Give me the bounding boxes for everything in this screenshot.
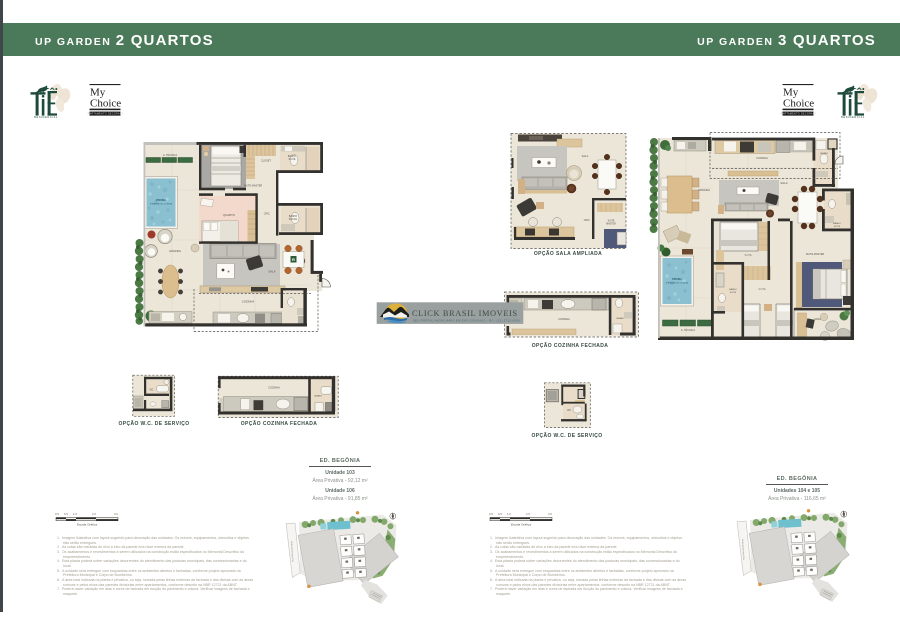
svg-text:MASTER: MASTER (606, 223, 616, 226)
svg-text:LAVABO: LAVABO (820, 152, 828, 155)
svg-text:SUITE MASTER: SUITE MASTER (244, 185, 263, 188)
svg-text:COZINHA: COZINHA (242, 300, 255, 304)
svg-text:BANHO: BANHO (288, 155, 296, 158)
svg-text:CIRC.: CIRC. (584, 219, 591, 222)
svg-text:SALA: SALA (780, 181, 787, 185)
svg-text:SUITE: SUITE (289, 159, 296, 161)
svg-text:BANHO: BANHO (729, 288, 737, 291)
svg-text:3.0: 3.0 (114, 512, 118, 516)
svg-text:PISCINA: PISCINA (672, 278, 682, 281)
svg-text:APARTAMENTO DECORADO: APARTAMENTO DECORADO (780, 113, 816, 116)
svg-text:SUITE: SUITE (608, 221, 615, 223)
svg-text:WC: WC (150, 389, 154, 391)
svg-text:CLICK BRASIL IMOVEIS: CLICK BRASIL IMOVEIS (412, 309, 518, 318)
svg-text:1.0: 1.0 (73, 512, 77, 516)
svg-text:0.5: 0.5 (64, 512, 68, 516)
svg-text:Escala Gráfica: Escala Gráfica (77, 523, 97, 527)
svg-text:RESIDENCIAL: RESIDENCIAL (841, 115, 865, 118)
svg-text:0.5: 0.5 (55, 512, 59, 516)
svg-text:2.0: 2.0 (526, 512, 530, 516)
svg-text:CIRC.: CIRC. (264, 213, 271, 216)
svg-text:COZINHA: COZINHA (756, 156, 768, 160)
svg-text:3.0: 3.0 (548, 512, 552, 516)
svg-text:R: R (292, 257, 295, 262)
svg-text:SUITE MASTER: SUITE MASTER (806, 253, 825, 256)
svg-text:QUARTO: QUARTO (223, 213, 236, 217)
svg-text:APARTAMENTO DECORADO: APARTAMENTO DECORADO (87, 113, 123, 116)
svg-text:2.0: 2.0 (92, 512, 96, 516)
svg-text:SEU PORTAL IMOBILIARIO EM SAO: SEU PORTAL IMOBILIARIO EM SAO GONCALO - … (413, 318, 520, 322)
svg-text:(PRAINHA USO COMUM): (PRAINHA USO COMUM) (150, 203, 172, 206)
svg-text:LAVABO: LAVABO (616, 317, 624, 320)
svg-text:SUITE: SUITE (758, 288, 766, 291)
svg-text:SALA: SALA (582, 154, 589, 158)
svg-text:BANHO: BANHO (289, 215, 297, 218)
svg-text:COZINHA: COZINHA (268, 386, 280, 390)
svg-text:(PRAINHA USO COMUM): (PRAINHA USO COMUM) (666, 282, 688, 285)
svg-text:COZINHA: COZINHA (558, 317, 570, 321)
svg-text:VARANDA: VARANDA (698, 189, 710, 192)
svg-text:RESIDENCIAL: RESIDENCIAL (34, 115, 58, 118)
svg-text:SALA: SALA (268, 270, 275, 274)
svg-text:SUITE: SUITE (744, 254, 752, 257)
svg-text:A. TÉCNICA: A. TÉCNICA (163, 154, 177, 157)
svg-text:Escala Gráfica: Escala Gráfica (511, 523, 531, 527)
svg-text:BANHO: BANHO (833, 222, 841, 225)
svg-text:A. TÉCNICA: A. TÉCNICA (681, 329, 695, 332)
svg-text:1.0: 1.0 (507, 512, 511, 516)
svg-text:SUITE: SUITE (730, 292, 737, 294)
svg-text:SUITE: SUITE (834, 226, 841, 228)
svg-text:CLOSET: CLOSET (261, 160, 271, 163)
svg-text:VARANDA: VARANDA (169, 250, 181, 253)
svg-text:SOCIAL: SOCIAL (289, 218, 298, 221)
svg-text:WC: WC (567, 410, 571, 412)
svg-text:LAVABO: LAVABO (314, 395, 322, 398)
svg-text:PISCINA: PISCINA (156, 199, 166, 202)
svg-text:0.5: 0.5 (498, 512, 502, 516)
svg-text:0.5: 0.5 (489, 512, 493, 516)
svg-text:Choice: Choice (90, 98, 121, 110)
svg-text:Choice: Choice (783, 98, 814, 110)
